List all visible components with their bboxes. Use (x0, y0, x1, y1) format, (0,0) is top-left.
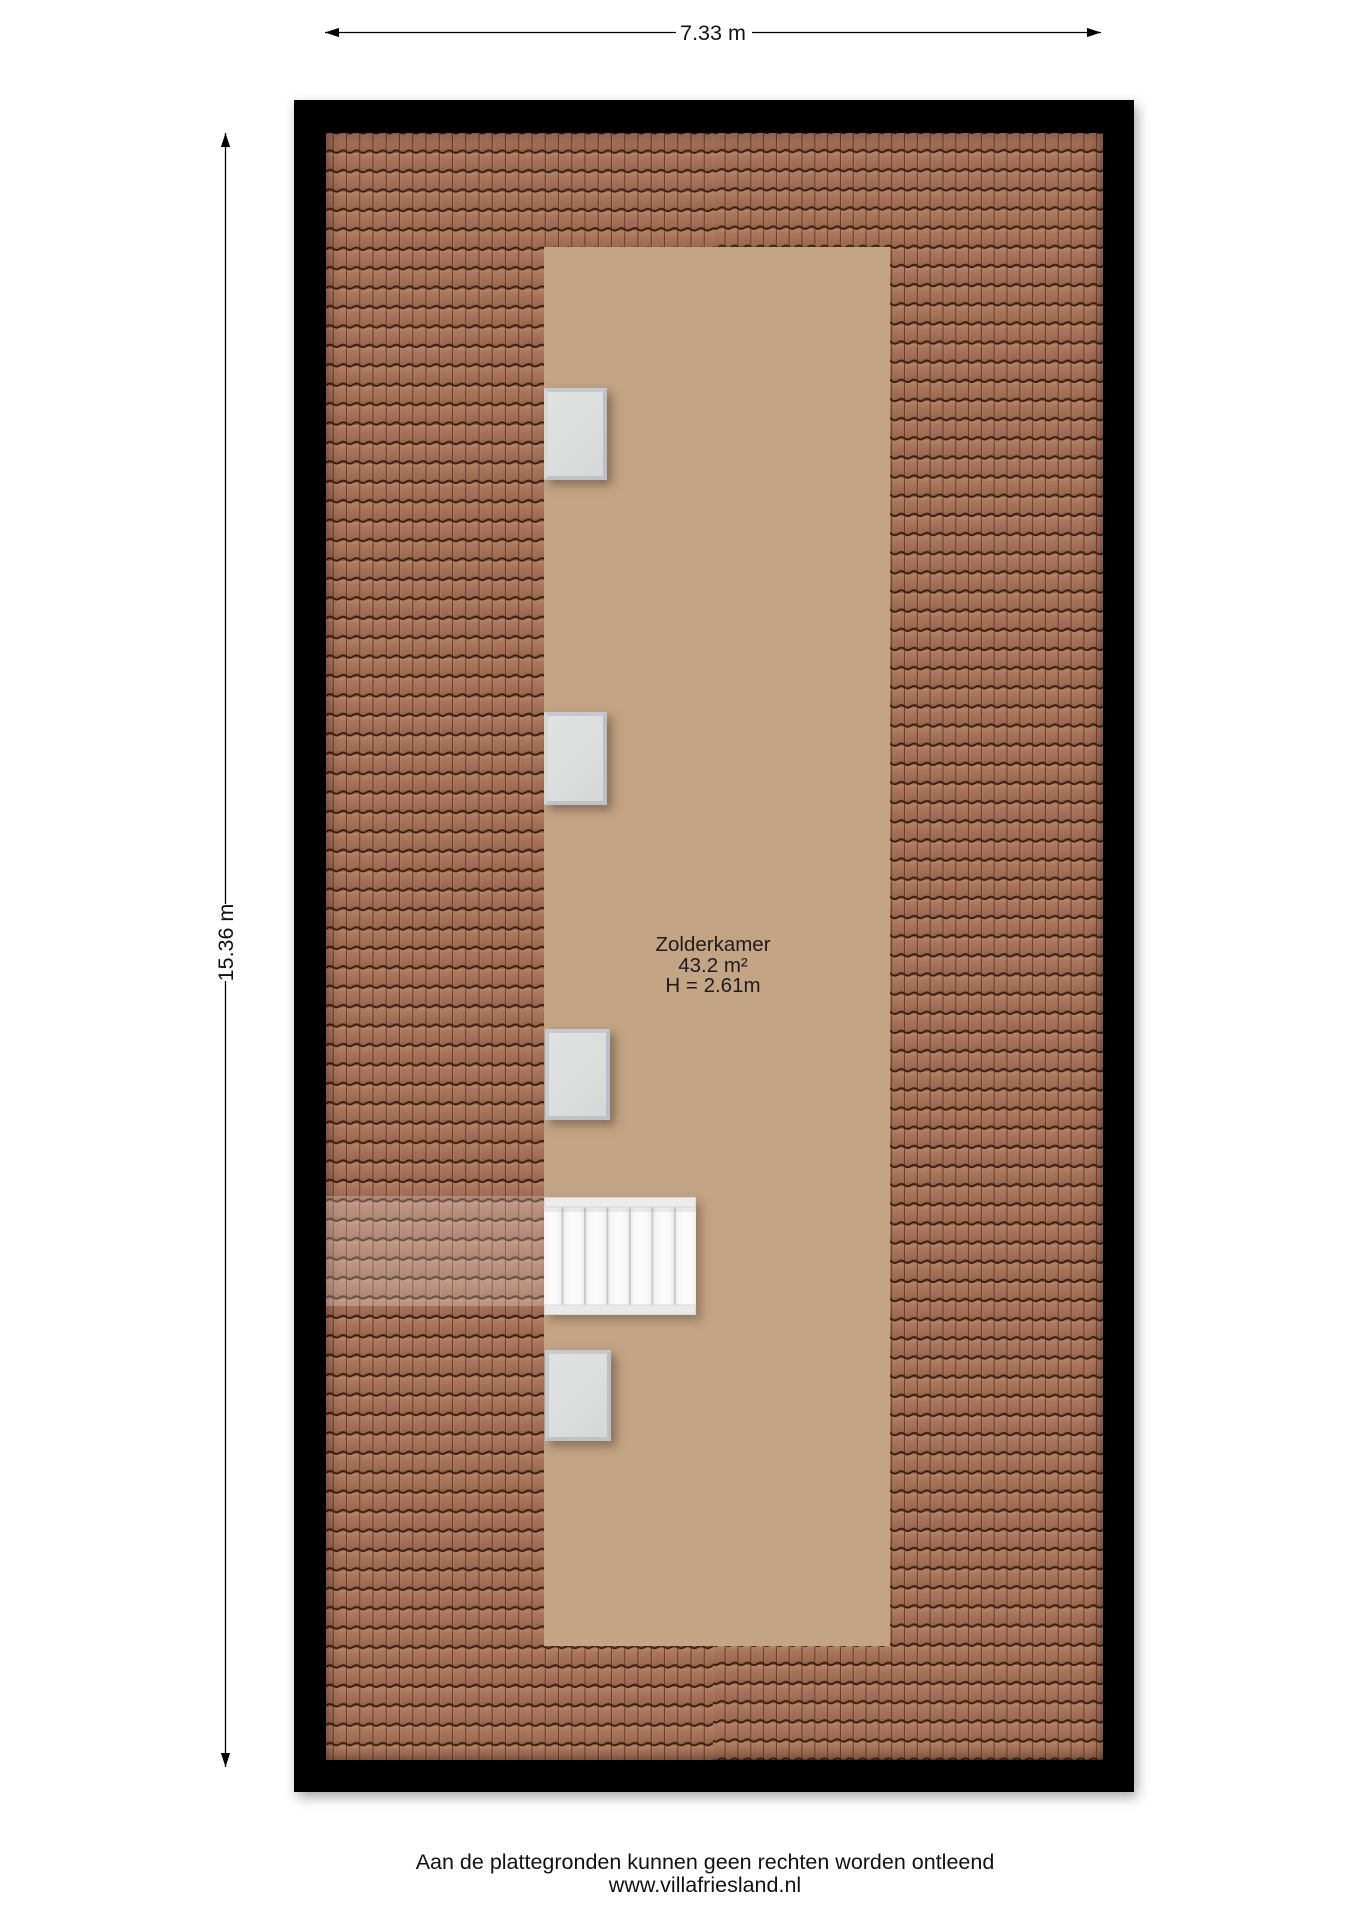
svg-text:7.33 m: 7.33 m (680, 21, 746, 45)
svg-text:15.36 m: 15.36 m (214, 904, 238, 982)
